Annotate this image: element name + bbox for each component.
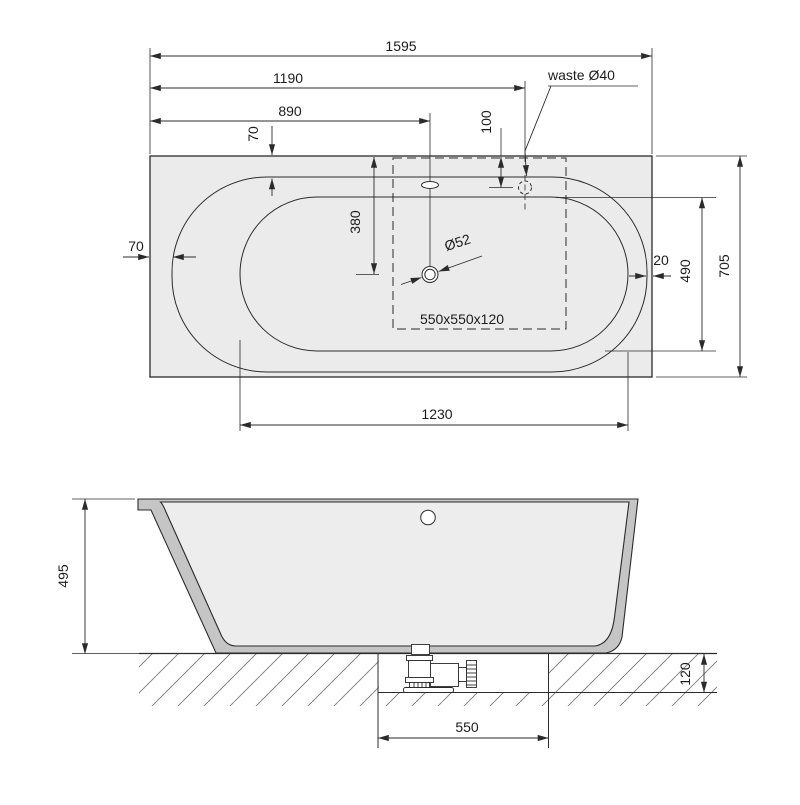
dim-recess-width-label: 550 [455,719,479,735]
trap-lip [407,656,433,661]
dim-rim-top-label: 70 [245,126,261,142]
dim-basin-width-label: 490 [677,259,693,283]
drain-tailpiece [412,645,430,655]
dim-overflow-x-label: 890 [278,103,302,119]
side-extension-lines [72,499,139,654]
dim-drain-y-label: 380 [347,210,363,234]
dim-total-length-label: 1595 [385,38,416,54]
dim-waste-x-label: 1190 [273,70,303,86]
trap-base-plate [404,688,454,693]
trap-neck [459,668,467,682]
overflow-hole [422,182,439,189]
waste-label: waste Ø40 [547,67,615,83]
drawing-page: 1595 1190 890 70 100 waste Ø40 70 380 Ø5… [0,0,800,800]
dim-waste-y-label: 100 [478,110,494,134]
tub-interior [161,502,630,646]
recess-size-label: 550x550x120 [420,311,504,327]
drain-hole-inner [425,269,435,279]
dim-total-width-label: 705 [716,254,732,278]
trap-flange [406,678,434,683]
side-view: 495 120 550 [55,499,717,748]
dim-recess-depth-label: 120 [677,662,693,686]
dim-height-label: 495 [55,564,71,588]
tub-deck-outline [150,156,652,377]
dim-basin-length-label: 1230 [421,406,452,422]
trap-outlet-body [431,664,459,687]
dim-rim-right-label: 20 [653,252,669,268]
trap-body [409,661,431,678]
plan-view: 1595 1190 890 70 100 waste Ø40 70 380 Ø5… [123,38,747,431]
dim-rim-left-label: 70 [128,238,144,254]
bathtub-technical-drawing: 1595 1190 890 70 100 waste Ø40 70 380 Ø5… [0,0,800,800]
overflow-hole-side [421,510,436,525]
